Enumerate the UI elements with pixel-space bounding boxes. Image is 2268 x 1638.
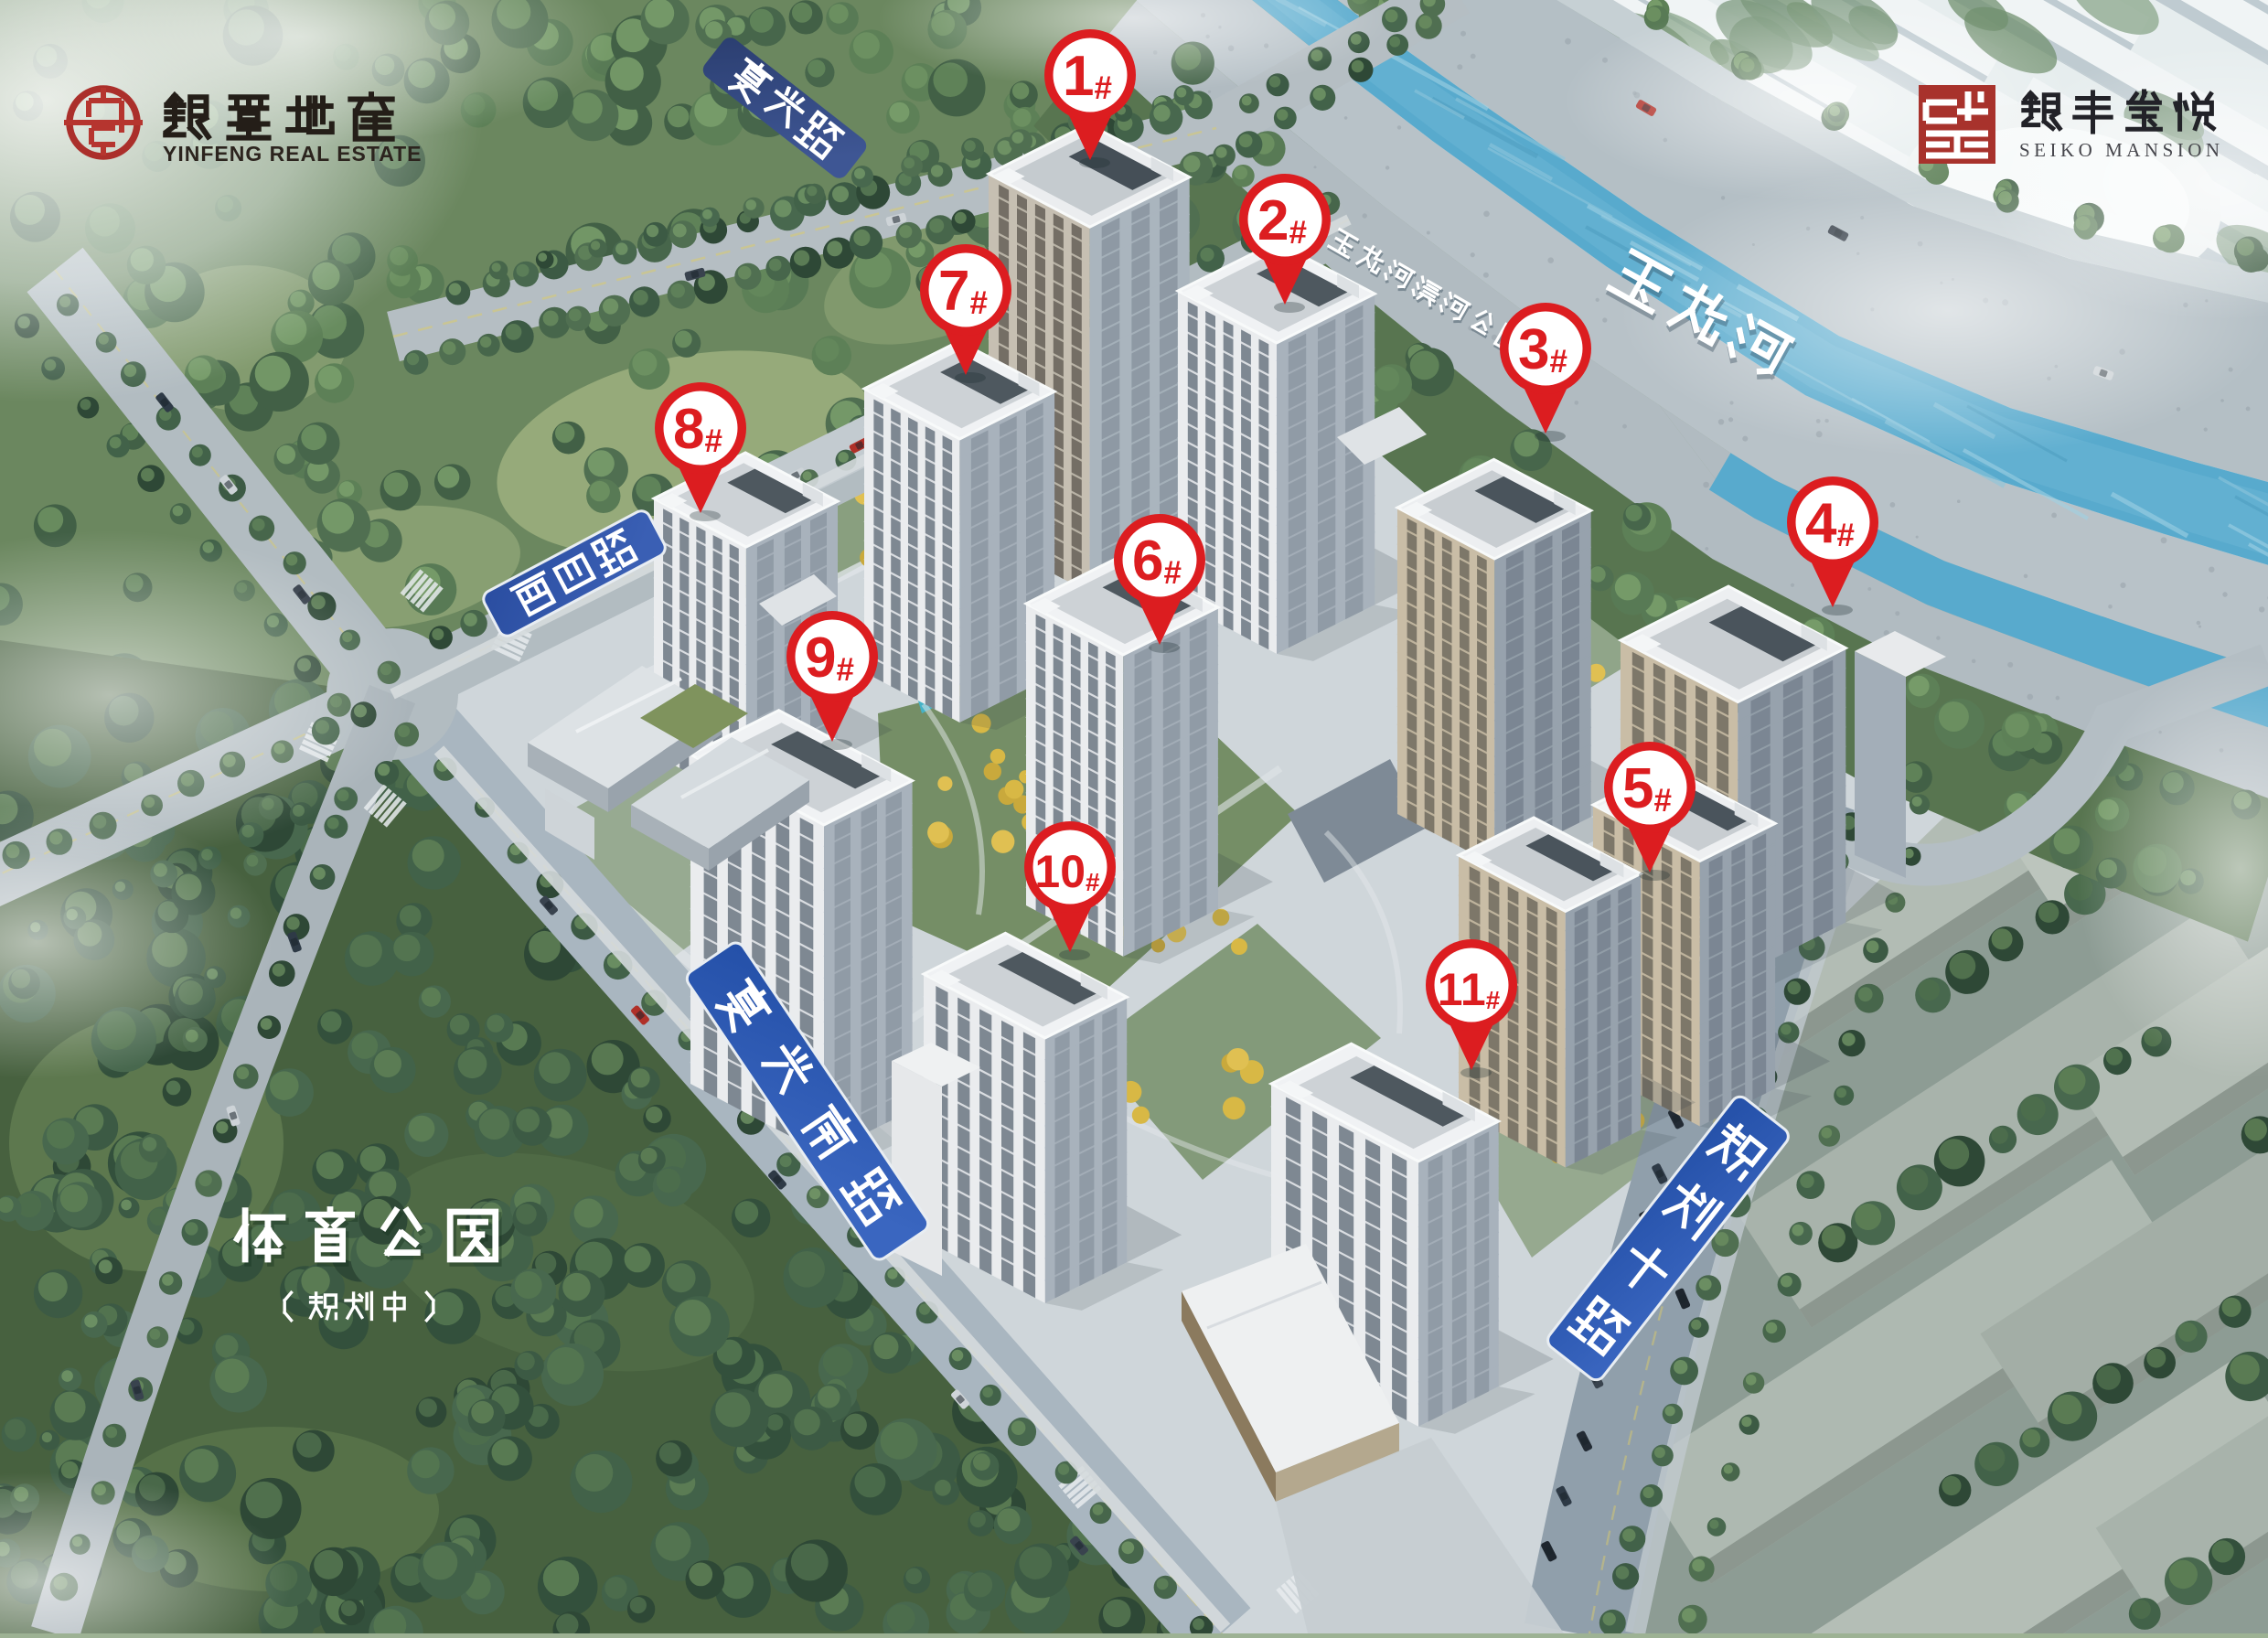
- svg-text:SEIKO MANSION: SEIKO MANSION: [2019, 139, 2224, 161]
- svg-text:YINFENG REAL ESTATE: YINFENG REAL ESTATE: [163, 142, 423, 166]
